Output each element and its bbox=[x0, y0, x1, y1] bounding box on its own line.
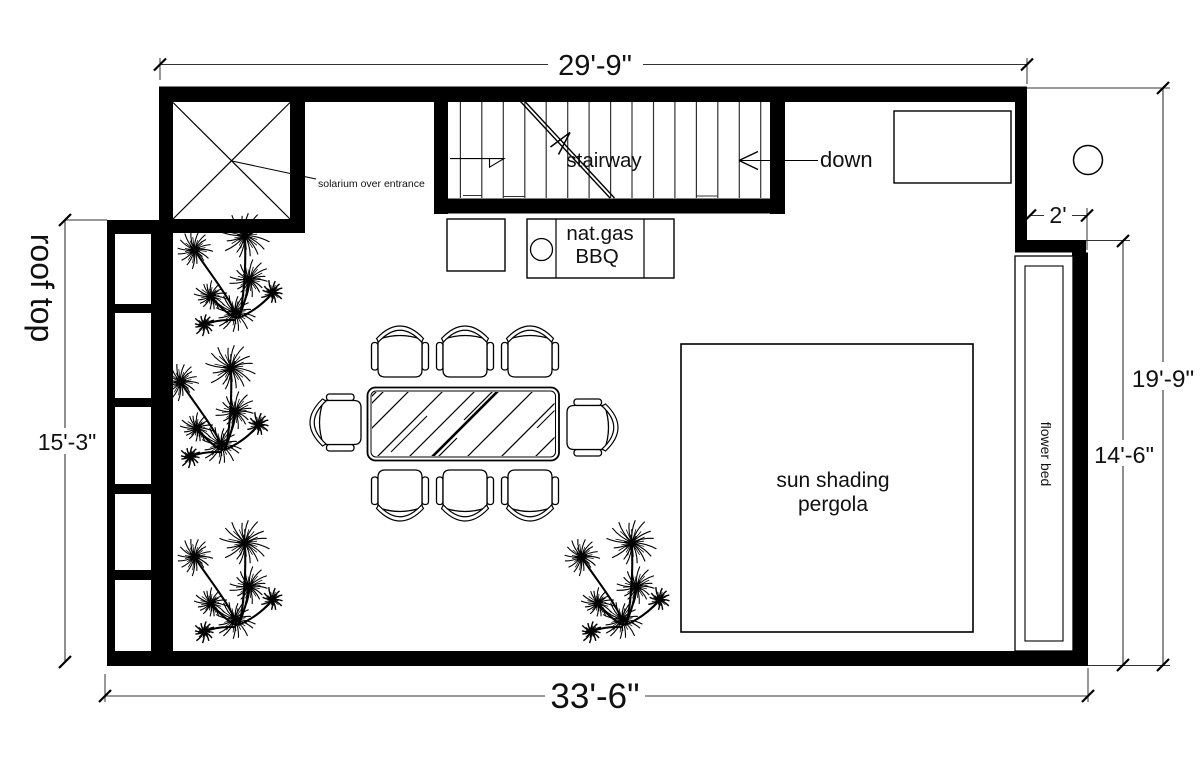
svg-text:sun shading: sun shading bbox=[776, 469, 889, 492]
svg-text:solarium over entrance: solarium over entrance bbox=[318, 178, 425, 190]
svg-text:roof top: roof top bbox=[24, 234, 60, 343]
svg-text:14'-6": 14'-6" bbox=[1094, 442, 1154, 468]
svg-text:stairway: stairway bbox=[566, 149, 642, 172]
svg-text:flower bed: flower bed bbox=[1038, 422, 1054, 487]
svg-text:BBQ: BBQ bbox=[575, 245, 618, 268]
svg-text:19'-9": 19'-9" bbox=[1132, 366, 1194, 393]
svg-text:33'-6": 33'-6" bbox=[550, 677, 639, 716]
svg-text:nat.gas: nat.gas bbox=[566, 222, 633, 245]
svg-text:29'-9": 29'-9" bbox=[558, 50, 632, 82]
svg-text:2': 2' bbox=[1049, 202, 1066, 228]
svg-text:down: down bbox=[820, 147, 873, 172]
svg-text:pergola: pergola bbox=[798, 493, 868, 516]
svg-text:15'-3": 15'-3" bbox=[38, 429, 97, 455]
